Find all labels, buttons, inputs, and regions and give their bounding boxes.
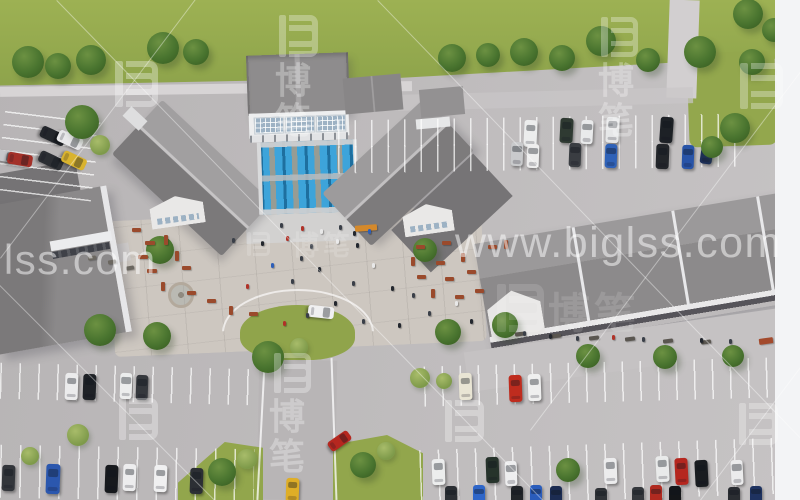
car — [153, 464, 167, 491]
person-dot — [368, 229, 371, 234]
tree — [684, 36, 716, 68]
tree — [549, 45, 575, 71]
car — [45, 464, 60, 494]
tree — [350, 452, 376, 478]
person-dot — [412, 293, 415, 298]
person-dot — [286, 236, 289, 241]
person-dot — [523, 331, 526, 336]
tree — [476, 43, 500, 67]
bush — [237, 449, 257, 469]
tree — [720, 113, 750, 143]
car — [505, 460, 518, 485]
bench — [467, 270, 476, 274]
person-dot — [352, 281, 355, 286]
bench — [455, 295, 464, 299]
bench — [442, 241, 451, 245]
bench — [147, 269, 157, 273]
bush — [90, 135, 110, 155]
small-roof — [343, 74, 404, 115]
rear-hall-roof — [246, 52, 350, 116]
person-dot — [334, 301, 337, 306]
car — [750, 486, 762, 500]
tree — [510, 38, 538, 66]
person-dot — [470, 319, 473, 324]
watermark-logo-icon — [116, 397, 160, 441]
person-dot — [356, 243, 359, 248]
car — [511, 486, 523, 500]
car — [550, 486, 562, 500]
bush — [410, 368, 430, 388]
car — [458, 372, 472, 399]
aerial-rendering-image: www.biglss.com www.biglss.com 博笔博笔博笔博笔博笔 — [0, 0, 800, 500]
tree — [147, 32, 179, 64]
person-dot — [283, 321, 286, 326]
person-dot — [306, 313, 309, 318]
tree — [84, 314, 116, 346]
person-dot — [428, 311, 431, 316]
car — [682, 145, 695, 169]
tree — [556, 458, 580, 482]
car — [431, 459, 445, 485]
person-dot — [642, 337, 645, 342]
bench — [138, 255, 148, 259]
person-dot — [271, 263, 274, 268]
car — [527, 373, 541, 400]
person-dot — [391, 286, 394, 291]
tree — [733, 0, 763, 29]
bush — [377, 442, 395, 460]
bench — [475, 289, 484, 293]
car — [527, 144, 540, 168]
person-dot — [301, 226, 304, 231]
tree — [252, 341, 284, 373]
tree — [586, 26, 616, 56]
car — [730, 459, 743, 485]
bush — [290, 338, 308, 356]
car — [136, 374, 149, 399]
person-dot — [232, 238, 235, 243]
tree — [12, 46, 44, 78]
person-dot — [280, 223, 283, 228]
car — [82, 374, 96, 400]
car — [674, 457, 688, 485]
bench — [207, 299, 216, 303]
car — [694, 459, 708, 487]
plaza-fountain — [168, 282, 194, 308]
bench — [175, 251, 179, 261]
person-dot — [398, 323, 401, 328]
bench — [488, 245, 497, 249]
car — [511, 142, 524, 166]
tree — [438, 44, 466, 72]
car — [655, 143, 669, 168]
parking-stall-lines — [424, 357, 779, 406]
person-dot — [455, 301, 458, 306]
person-dot — [362, 319, 365, 324]
tree — [739, 49, 765, 75]
bench — [187, 291, 196, 295]
person-dot — [372, 263, 375, 268]
bush — [21, 447, 39, 465]
car — [285, 478, 299, 500]
tree — [576, 344, 600, 368]
clerestory-window — [254, 117, 285, 135]
car — [104, 465, 118, 493]
clerestory-window — [285, 115, 316, 133]
car — [189, 468, 203, 494]
person-dot — [246, 284, 249, 289]
person-dot — [729, 339, 732, 344]
bush — [67, 424, 89, 446]
car — [485, 457, 499, 483]
bench — [161, 282, 165, 291]
tree — [65, 105, 99, 139]
person-dot — [576, 336, 579, 341]
car — [728, 487, 740, 500]
person-dot — [353, 231, 356, 236]
person-dot — [336, 239, 339, 244]
bench — [249, 312, 258, 316]
small-roof — [419, 86, 465, 118]
tree — [183, 39, 209, 65]
tree — [653, 345, 677, 369]
bench — [145, 241, 155, 245]
car — [605, 117, 619, 144]
tree — [76, 45, 106, 75]
bench — [416, 245, 425, 249]
car — [669, 486, 681, 500]
bench — [445, 277, 454, 281]
car — [559, 117, 573, 143]
tree — [435, 319, 461, 345]
bench — [132, 228, 141, 232]
car — [445, 486, 457, 500]
car — [122, 463, 136, 490]
car — [64, 372, 78, 399]
person-dot — [261, 241, 264, 246]
car — [605, 144, 618, 168]
car — [655, 456, 669, 483]
tree — [722, 345, 744, 367]
person-dot — [339, 225, 342, 230]
car — [1, 465, 15, 491]
bench — [431, 289, 435, 298]
bench — [461, 253, 465, 262]
person-dot — [300, 256, 303, 261]
car — [603, 458, 617, 484]
car — [569, 143, 582, 167]
bench — [504, 240, 508, 249]
bench — [164, 235, 168, 245]
bench — [229, 306, 233, 315]
car — [523, 119, 537, 147]
car — [120, 373, 133, 399]
car — [650, 485, 662, 500]
car — [530, 485, 542, 500]
tree — [45, 53, 71, 79]
car — [595, 488, 607, 500]
bush — [436, 373, 452, 389]
car — [307, 305, 334, 320]
tree — [413, 238, 437, 262]
tree — [208, 458, 236, 486]
bench — [411, 257, 415, 266]
car — [580, 120, 593, 145]
bench — [417, 275, 426, 279]
image-margin-strip — [775, 0, 800, 500]
car — [632, 487, 644, 500]
person-dot — [612, 335, 615, 340]
tree — [143, 322, 171, 350]
tree — [701, 136, 723, 158]
car — [659, 117, 674, 144]
person-dot — [318, 267, 321, 272]
bench — [182, 266, 191, 270]
tree — [636, 48, 660, 72]
person-dot — [549, 334, 552, 339]
person-dot — [310, 244, 313, 249]
person-dot — [291, 279, 294, 284]
car — [473, 485, 485, 500]
car — [508, 374, 522, 401]
person-dot — [700, 338, 703, 343]
bench — [436, 261, 445, 265]
person-dot — [320, 229, 323, 234]
